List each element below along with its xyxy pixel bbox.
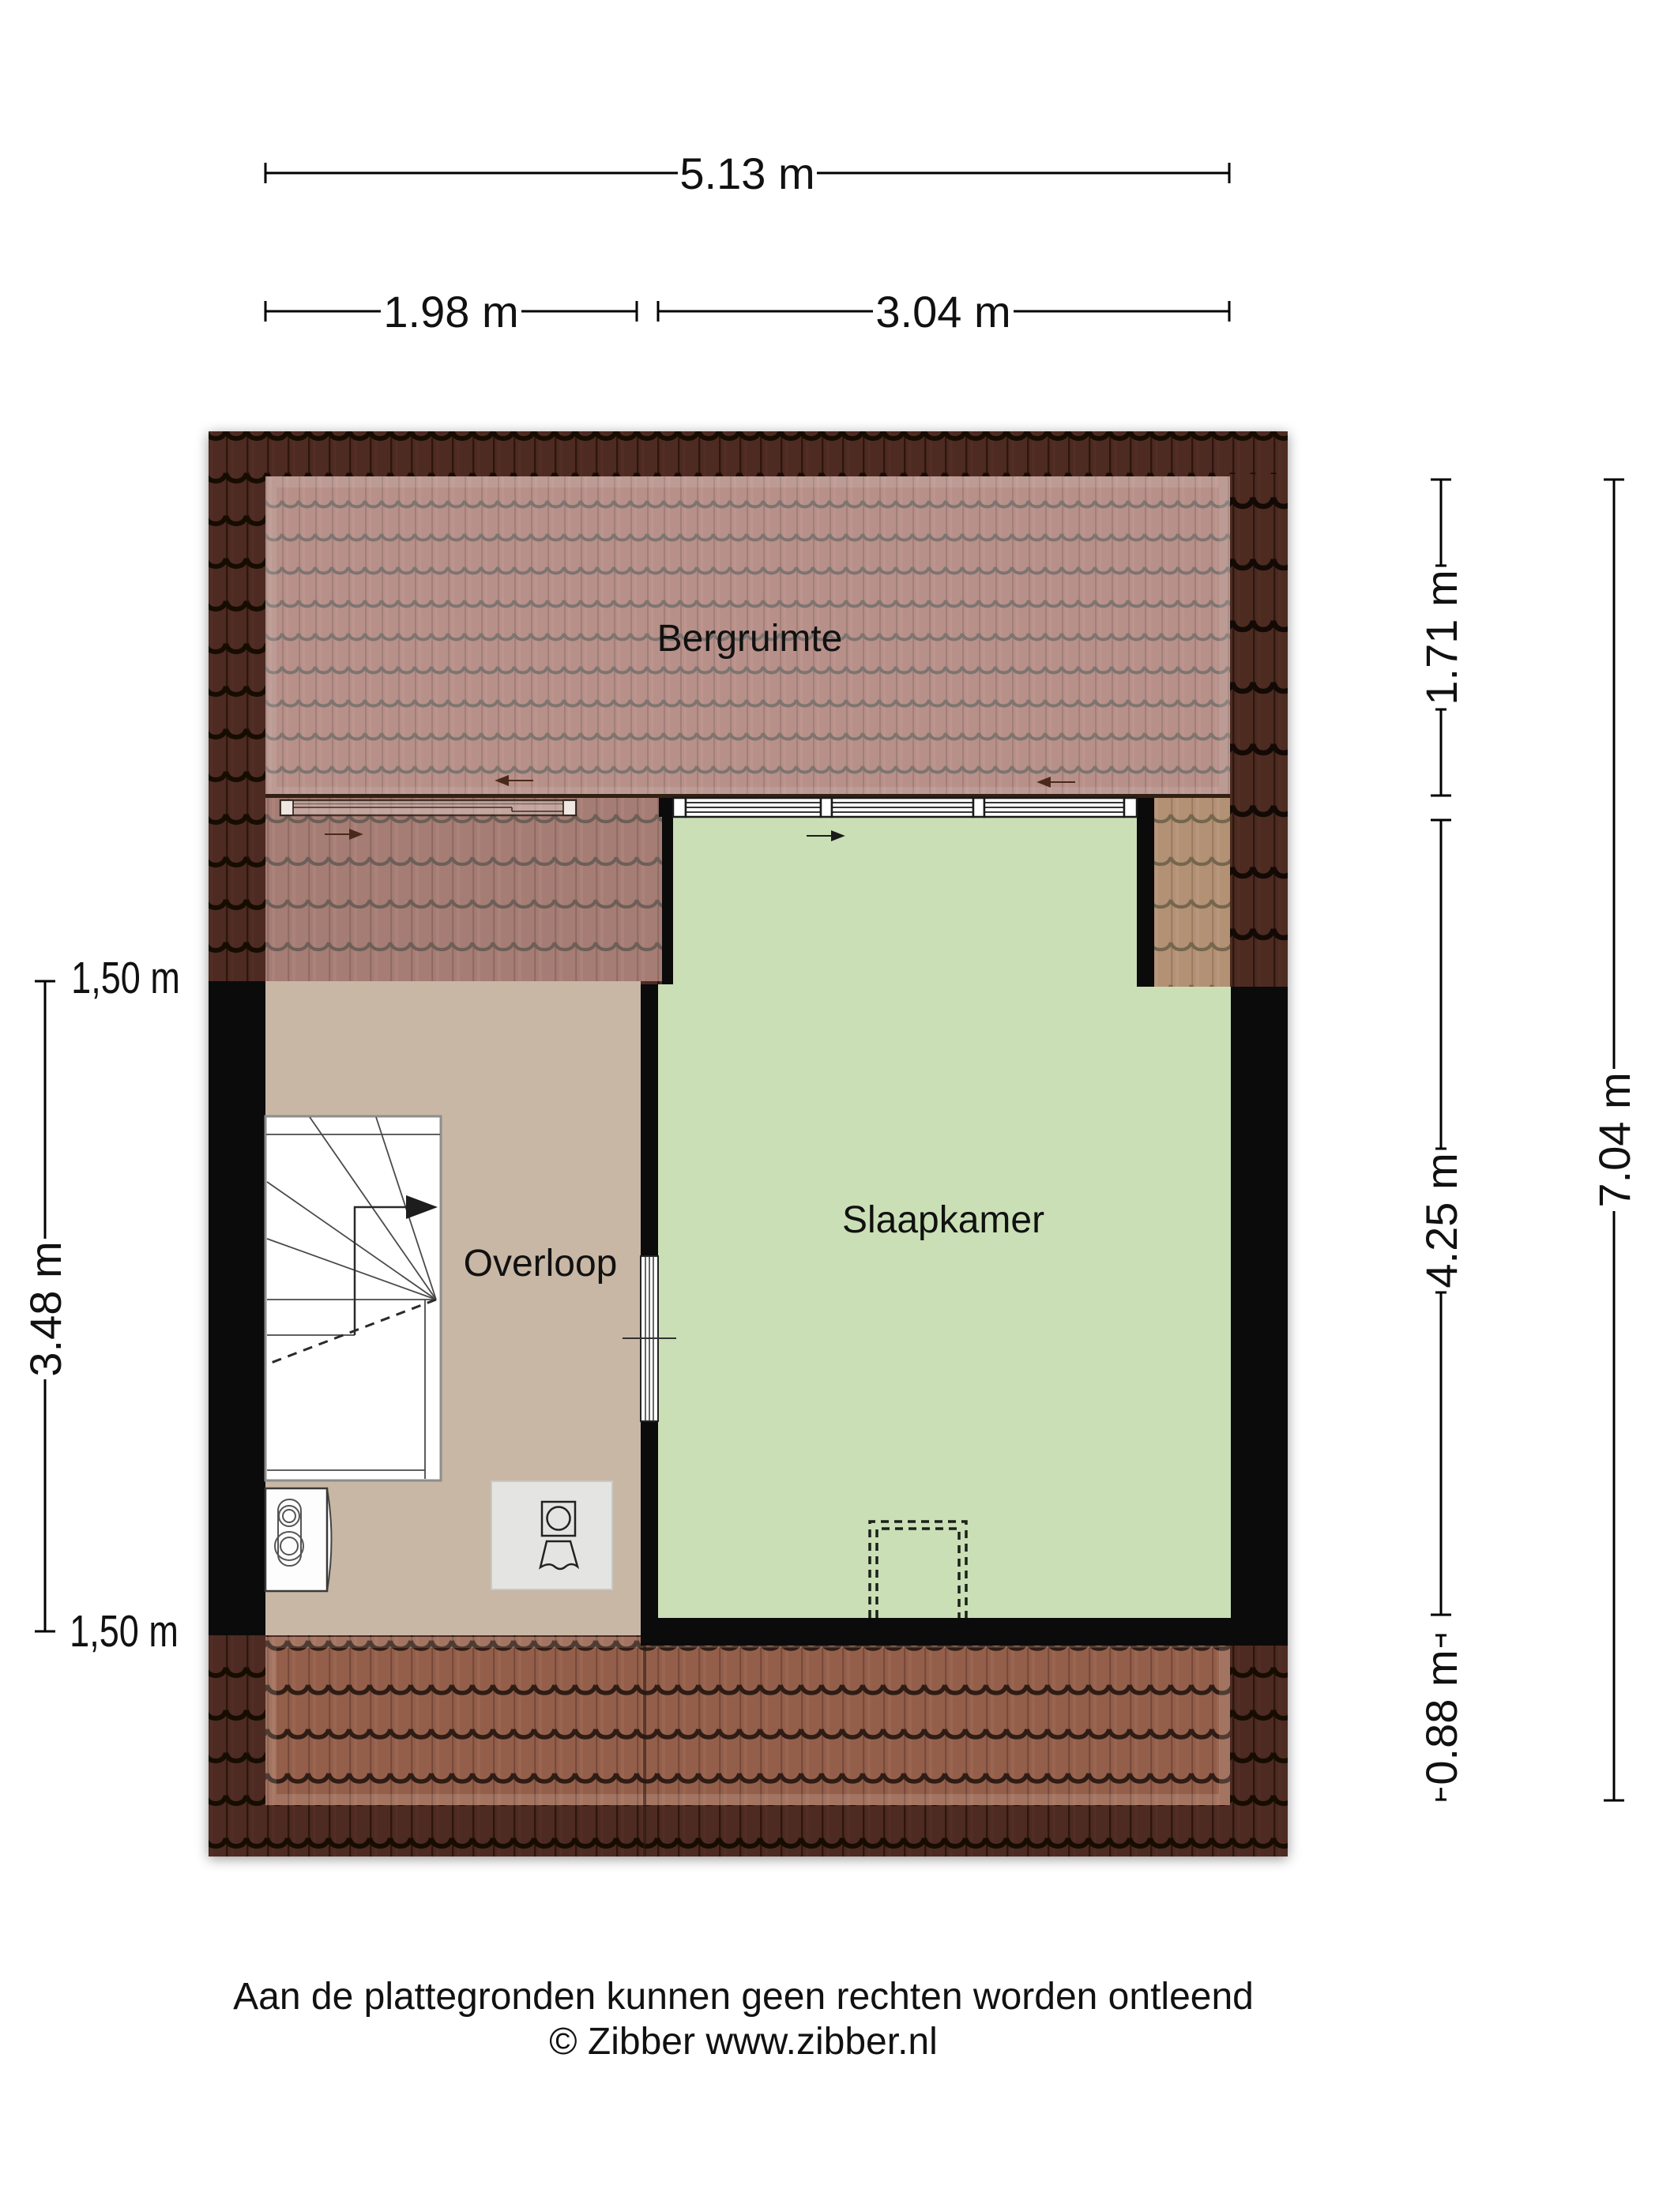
svg-text:Slaapkamer: Slaapkamer bbox=[842, 1199, 1044, 1241]
svg-text:© Zibber www.zibber.nl: © Zibber www.zibber.nl bbox=[549, 2021, 938, 2063]
svg-text:1.71 m: 1.71 m bbox=[1416, 570, 1466, 705]
svg-text:5.13 m: 5.13 m bbox=[679, 149, 814, 198]
svg-text:3.48 m: 3.48 m bbox=[21, 1241, 70, 1376]
svg-text:3.04 m: 3.04 m bbox=[875, 287, 1010, 337]
svg-text:Aan de plattegronden kunnen ge: Aan de plattegronden kunnen geen rechten… bbox=[233, 1976, 1254, 2018]
svg-text:0.88 m: 0.88 m bbox=[1416, 1650, 1466, 1785]
svg-text:Bergruimte: Bergruimte bbox=[657, 618, 843, 660]
svg-text:7.04 m: 7.04 m bbox=[1589, 1072, 1639, 1207]
svg-text:1.98 m: 1.98 m bbox=[383, 287, 518, 337]
svg-text:Overloop: Overloop bbox=[464, 1243, 618, 1285]
svg-text:1,50 m: 1,50 m bbox=[71, 953, 180, 1003]
svg-text:4.25 m: 4.25 m bbox=[1416, 1153, 1466, 1288]
svg-text:1,50 m: 1,50 m bbox=[70, 1606, 179, 1656]
